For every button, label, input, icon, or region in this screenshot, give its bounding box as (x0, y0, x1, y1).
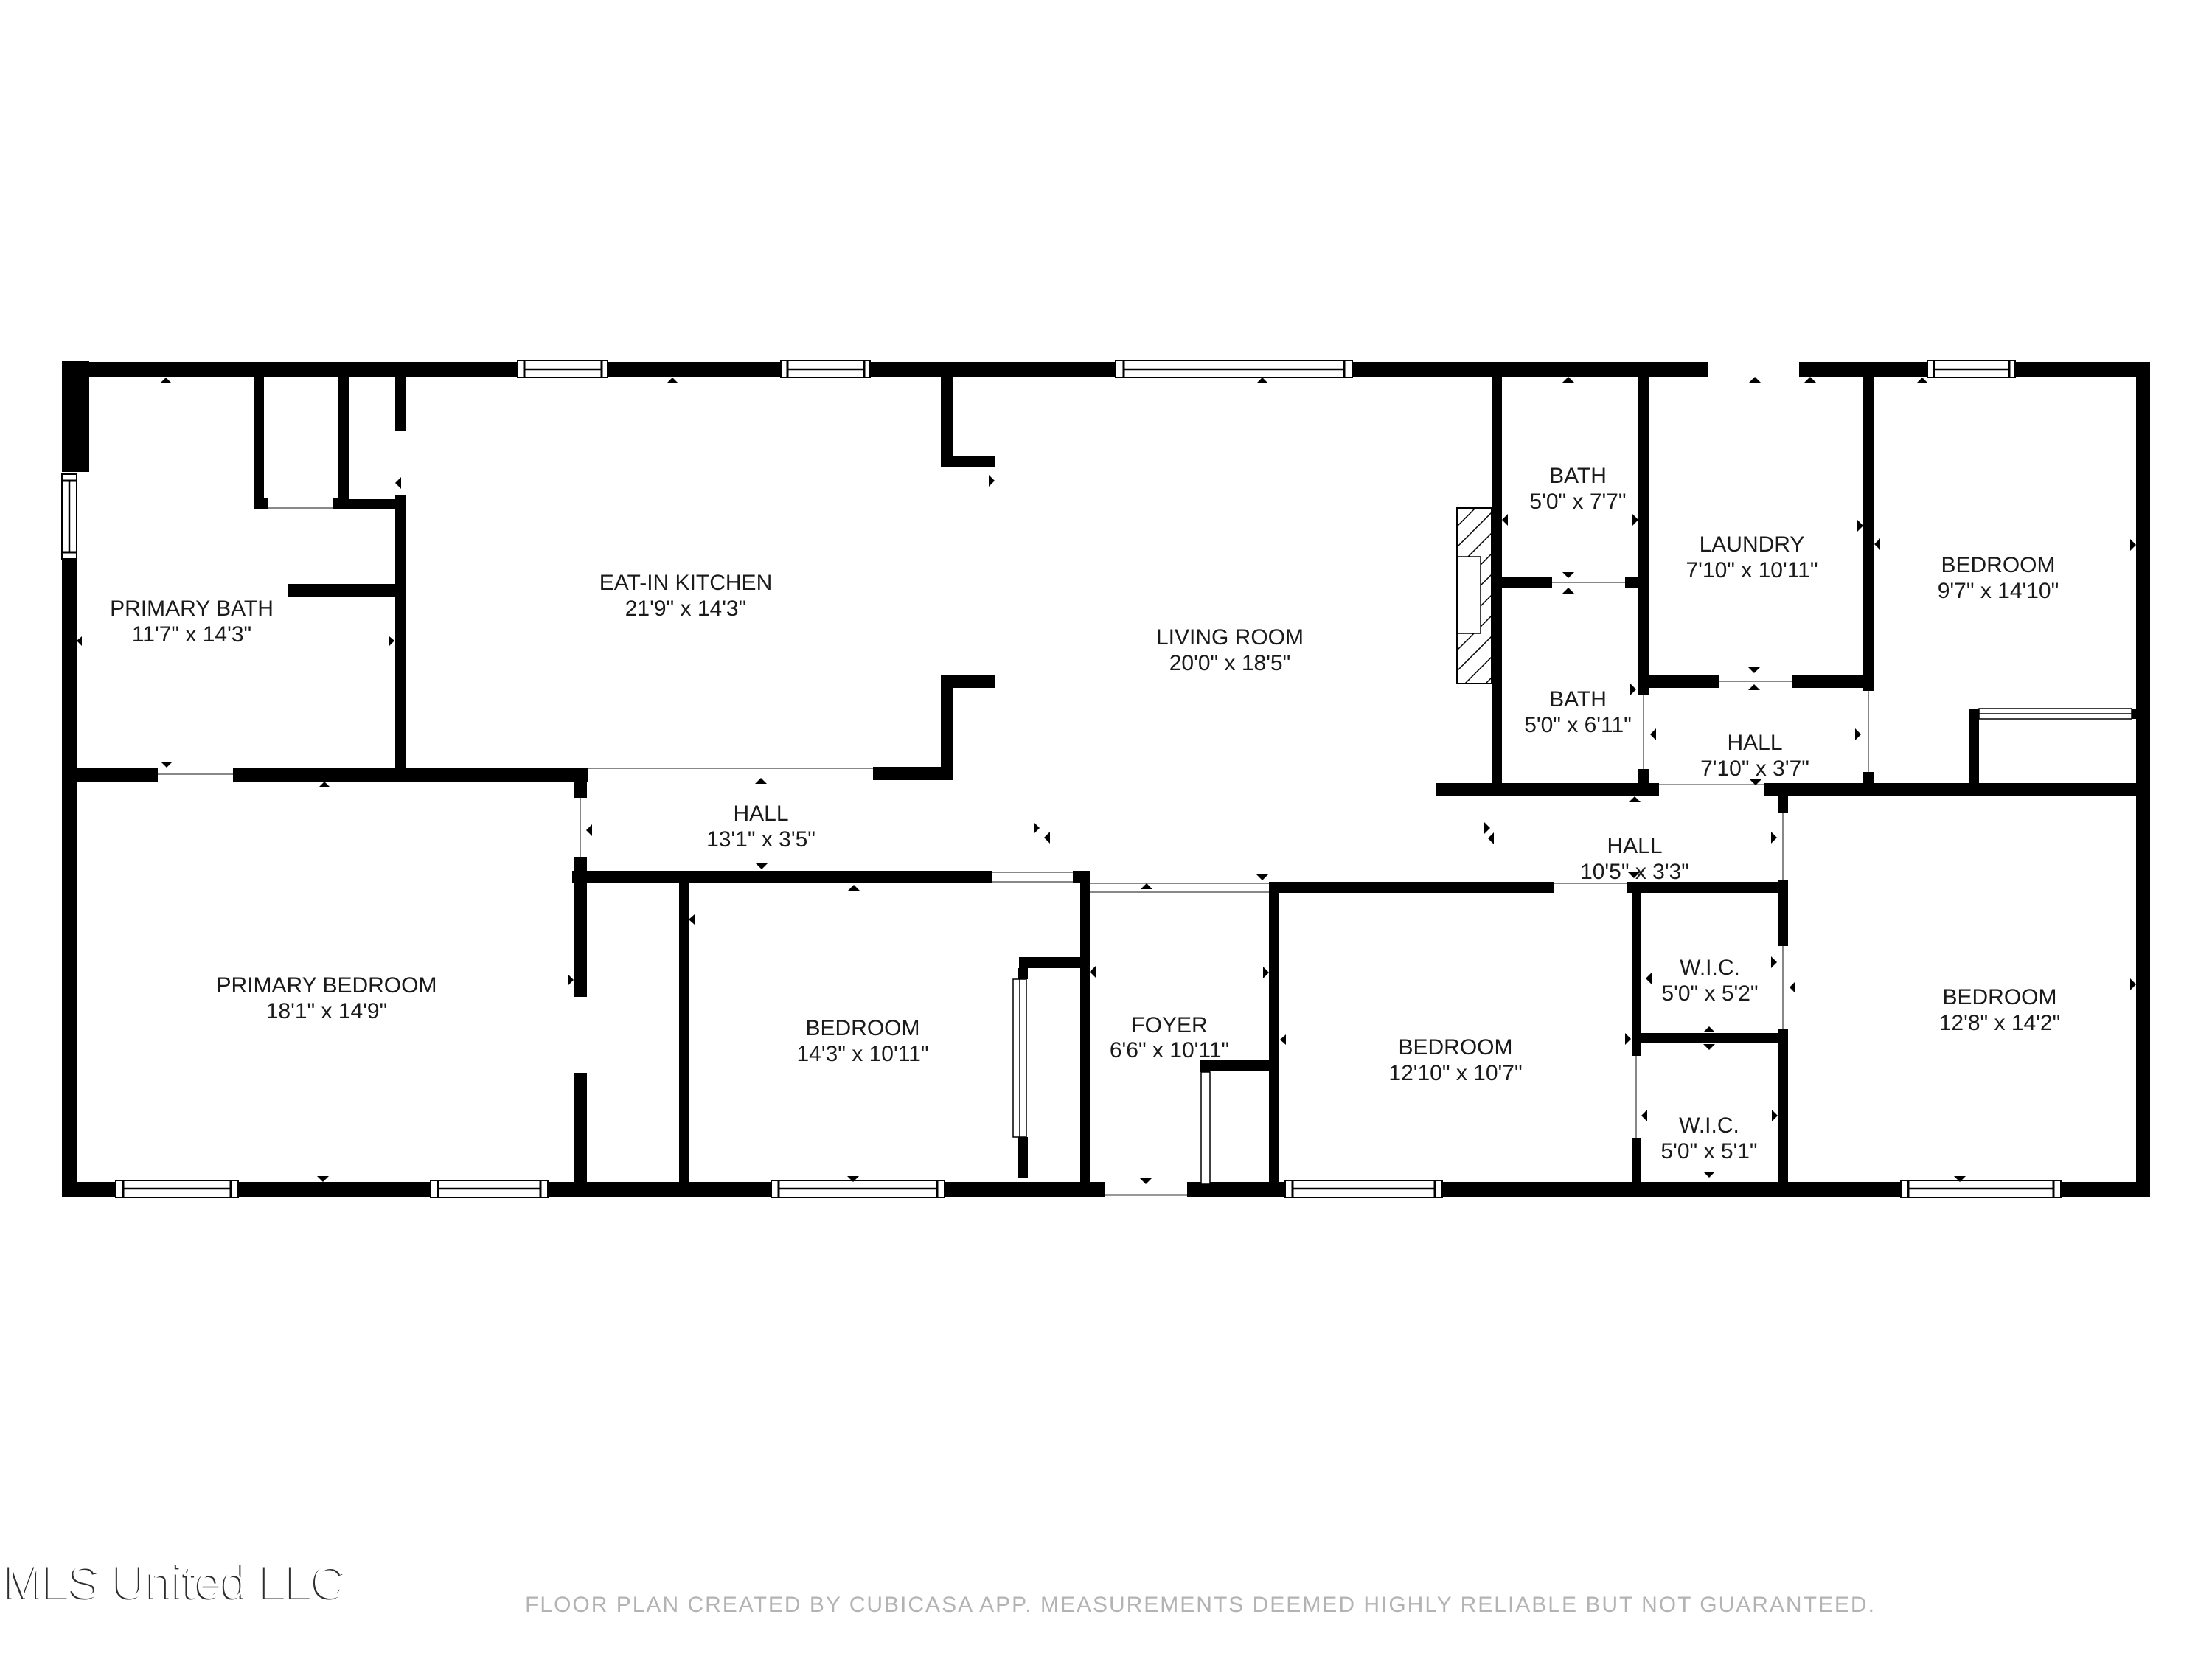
svg-text:7'10" x 3'7": 7'10" x 3'7" (1700, 757, 1809, 781)
svg-text:14'3" x 10'11": 14'3" x 10'11" (797, 1042, 929, 1066)
svg-text:BEDROOM: BEDROOM (1941, 553, 2055, 577)
svg-text:9'7" x 14'10": 9'7" x 14'10" (1938, 579, 2059, 603)
svg-text:EAT-IN KITCHEN: EAT-IN KITCHEN (599, 571, 772, 595)
svg-text:PRIMARY BEDROOM: PRIMARY BEDROOM (217, 973, 437, 998)
svg-text:LAUNDRY: LAUNDRY (1700, 532, 1805, 557)
svg-text:BATH: BATH (1549, 687, 1607, 712)
svg-text:12'10" x 10'7": 12'10" x 10'7" (1388, 1061, 1522, 1085)
svg-text:5'0" x 6'11": 5'0" x 6'11" (1524, 713, 1632, 737)
svg-text:FLOOR PLAN CREATED BY CUBICASA: FLOOR PLAN CREATED BY CUBICASA APP. MEAS… (525, 1593, 1876, 1617)
svg-text:FOYER: FOYER (1131, 1013, 1207, 1037)
svg-text:11'7" x 14'3": 11'7" x 14'3" (132, 622, 251, 647)
svg-text:PRIMARY BATH: PRIMARY BATH (110, 597, 274, 621)
svg-text:21'9" x 14'3": 21'9" x 14'3" (625, 597, 747, 621)
svg-text:BEDROOM: BEDROOM (1942, 985, 2056, 1009)
svg-text:HALL: HALL (1727, 731, 1782, 755)
svg-text:5'0" x 5'1": 5'0" x 5'1" (1660, 1139, 1757, 1164)
svg-text:HALL: HALL (733, 801, 788, 826)
svg-text:18'1" x 14'9": 18'1" x 14'9" (266, 999, 388, 1023)
svg-text:10'5" x 3'3": 10'5" x 3'3" (1580, 860, 1689, 884)
svg-text:BEDROOM: BEDROOM (1398, 1035, 1512, 1060)
svg-text:6'6" x 10'11": 6'6" x 10'11" (1110, 1038, 1229, 1062)
svg-text:5'0" x 5'2": 5'0" x 5'2" (1661, 981, 1758, 1006)
svg-text:12'8" x 14'2": 12'8" x 14'2" (1939, 1011, 2061, 1035)
svg-text:MLS United LLC: MLS United LLC (5, 1557, 346, 1609)
svg-text:W.I.C.: W.I.C. (1679, 1113, 1739, 1138)
svg-text:BEDROOM: BEDROOM (805, 1016, 919, 1040)
svg-text:20'0" x 18'5": 20'0" x 18'5" (1169, 651, 1291, 675)
svg-text:13'1" x 3'5": 13'1" x 3'5" (706, 827, 815, 852)
svg-text:7'10" x 10'11": 7'10" x 10'11" (1686, 558, 1818, 582)
svg-text:5'0" x 7'7": 5'0" x 7'7" (1529, 490, 1626, 514)
svg-text:HALL: HALL (1607, 834, 1662, 858)
svg-text:BATH: BATH (1549, 464, 1607, 488)
svg-text:LIVING ROOM: LIVING ROOM (1156, 625, 1304, 650)
svg-text:W.I.C.: W.I.C. (1680, 956, 1740, 980)
